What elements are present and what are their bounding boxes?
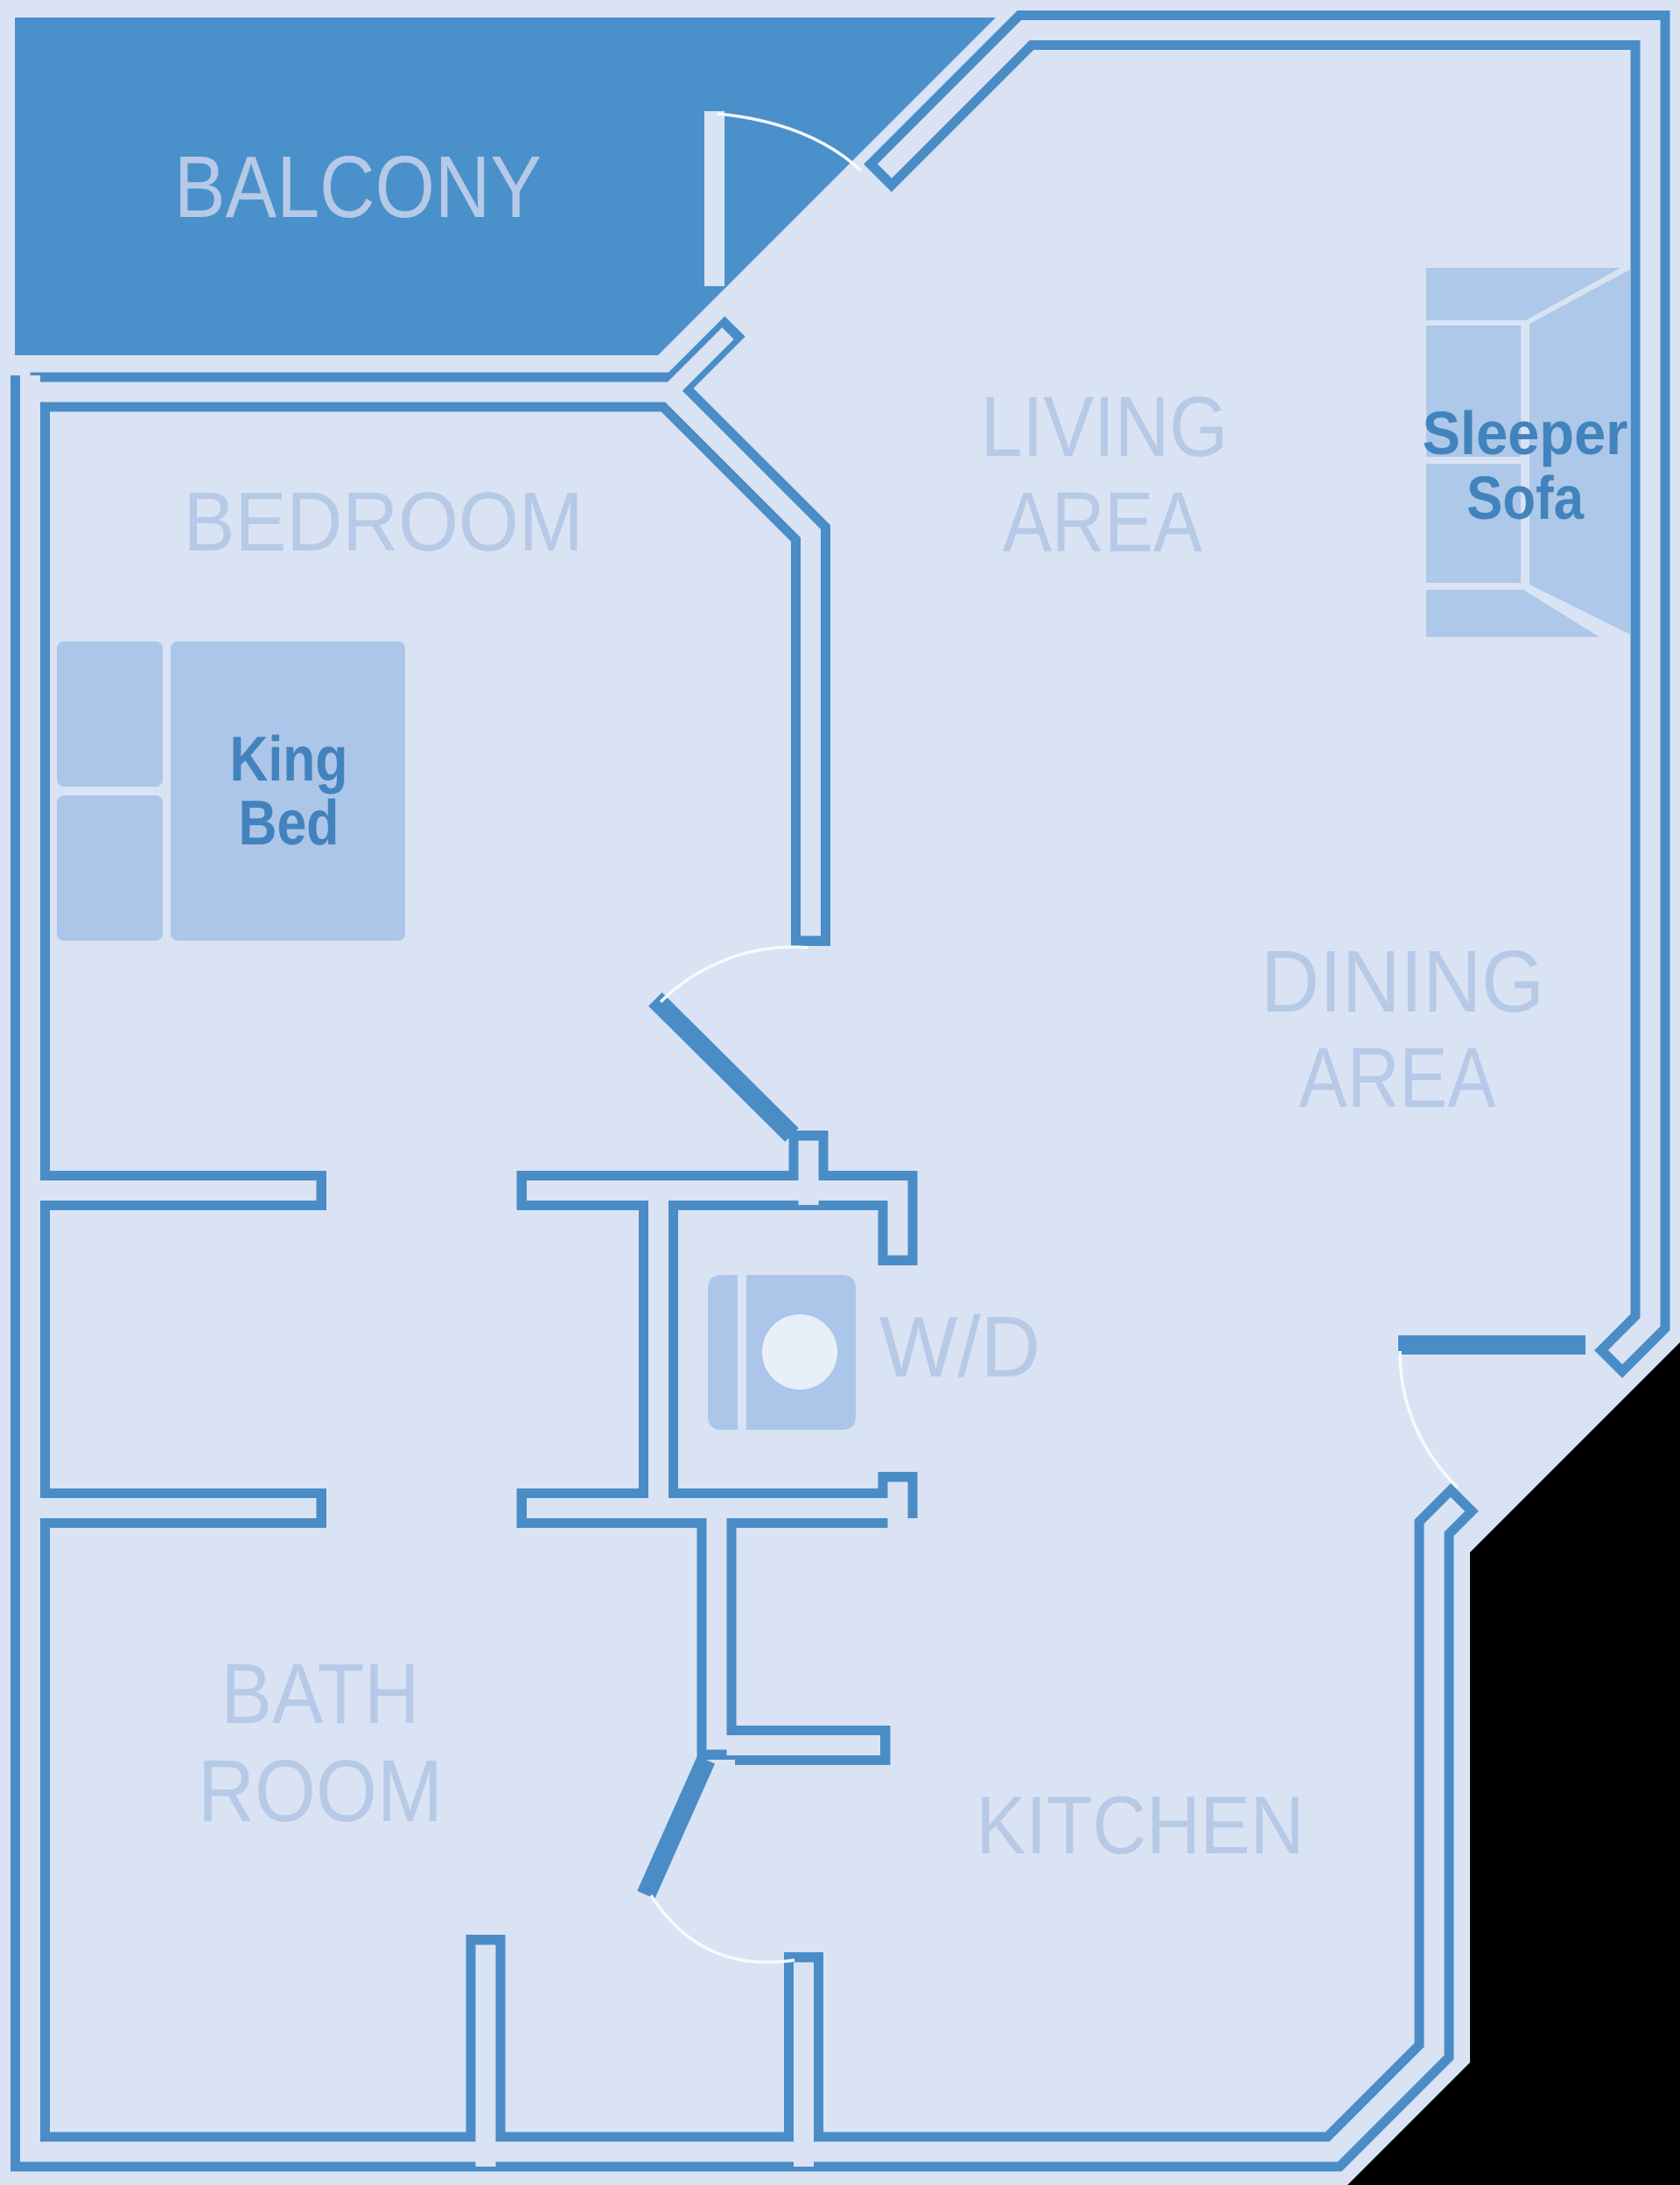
svg-text:BATH: BATH — [221, 1646, 420, 1741]
svg-text:W/D: W/D — [879, 1299, 1040, 1395]
svg-text:Sleeper: Sleeper — [1423, 399, 1628, 467]
svg-text:King: King — [230, 725, 348, 795]
svg-text:AREA: AREA — [1299, 1030, 1496, 1125]
svg-text:BEDROOM: BEDROOM — [184, 475, 584, 569]
svg-text:Bed: Bed — [239, 788, 339, 858]
svg-text:BALCONY: BALCONY — [174, 138, 542, 236]
svg-text:LIVING: LIVING — [981, 379, 1228, 474]
svg-text:DINING: DINING — [1261, 933, 1544, 1031]
svg-text:AREA: AREA — [1003, 474, 1202, 570]
svg-text:Sofa: Sofa — [1466, 464, 1585, 532]
svg-text:KITCHEN: KITCHEN — [976, 1779, 1305, 1871]
svg-text:ROOM: ROOM — [198, 1742, 443, 1840]
